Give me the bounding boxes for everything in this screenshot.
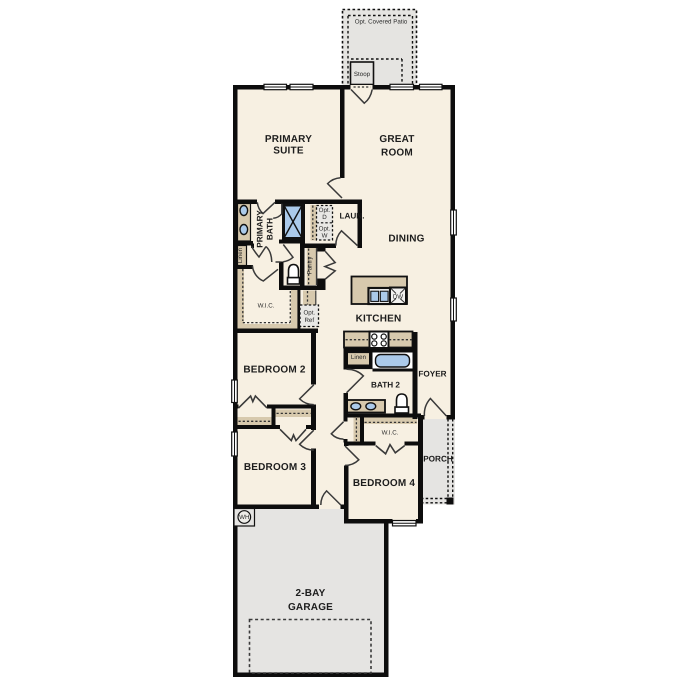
svg-text:BEDROOM 3: BEDROOM 3 xyxy=(244,462,307,473)
svg-text:KITCHEN: KITCHEN xyxy=(356,314,402,325)
svg-text:WH: WH xyxy=(239,514,249,521)
svg-text:LAUN.: LAUN. xyxy=(339,212,364,221)
svg-text:PORCH: PORCH xyxy=(423,455,453,464)
svg-text:FOYER: FOYER xyxy=(418,370,446,379)
svg-text:ROOM: ROOM xyxy=(381,148,413,159)
svg-text:Pantry: Pantry xyxy=(307,256,314,275)
svg-text:BATH 2: BATH 2 xyxy=(371,381,400,390)
svg-text:Opt.: Opt. xyxy=(303,310,315,317)
svg-text:Linen: Linen xyxy=(351,354,367,361)
svg-text:GREAT: GREAT xyxy=(379,134,414,145)
svg-text:2-BAY: 2-BAY xyxy=(295,588,325,599)
svg-text:Opt.: Opt. xyxy=(319,207,331,214)
svg-text:Opt.: Opt. xyxy=(319,226,331,233)
svg-text:Ref: Ref xyxy=(304,317,314,324)
svg-text:BEDROOM 2: BEDROOM 2 xyxy=(243,365,306,376)
svg-text:PRIMARY: PRIMARY xyxy=(265,134,312,145)
svg-text:Stoop: Stoop xyxy=(354,71,371,78)
svg-text:D: D xyxy=(322,214,327,221)
svg-text:BEDROOM 4: BEDROOM 4 xyxy=(353,478,416,489)
svg-text:W.I.C.: W.I.C. xyxy=(382,430,399,437)
svg-text:Opt. Covered Patio: Opt. Covered Patio xyxy=(355,19,408,26)
svg-text:Linen: Linen xyxy=(237,247,244,263)
svg-text:BATH: BATH xyxy=(266,218,275,240)
svg-text:DW: DW xyxy=(393,293,403,300)
svg-text:PRIMARY: PRIMARY xyxy=(255,210,264,248)
svg-text:SUITE: SUITE xyxy=(273,146,304,157)
svg-text:DINING: DINING xyxy=(388,234,424,245)
svg-text:W.I.C.: W.I.C. xyxy=(258,303,275,310)
svg-text:GARAGE: GARAGE xyxy=(288,602,333,613)
svg-text:W: W xyxy=(322,233,328,240)
